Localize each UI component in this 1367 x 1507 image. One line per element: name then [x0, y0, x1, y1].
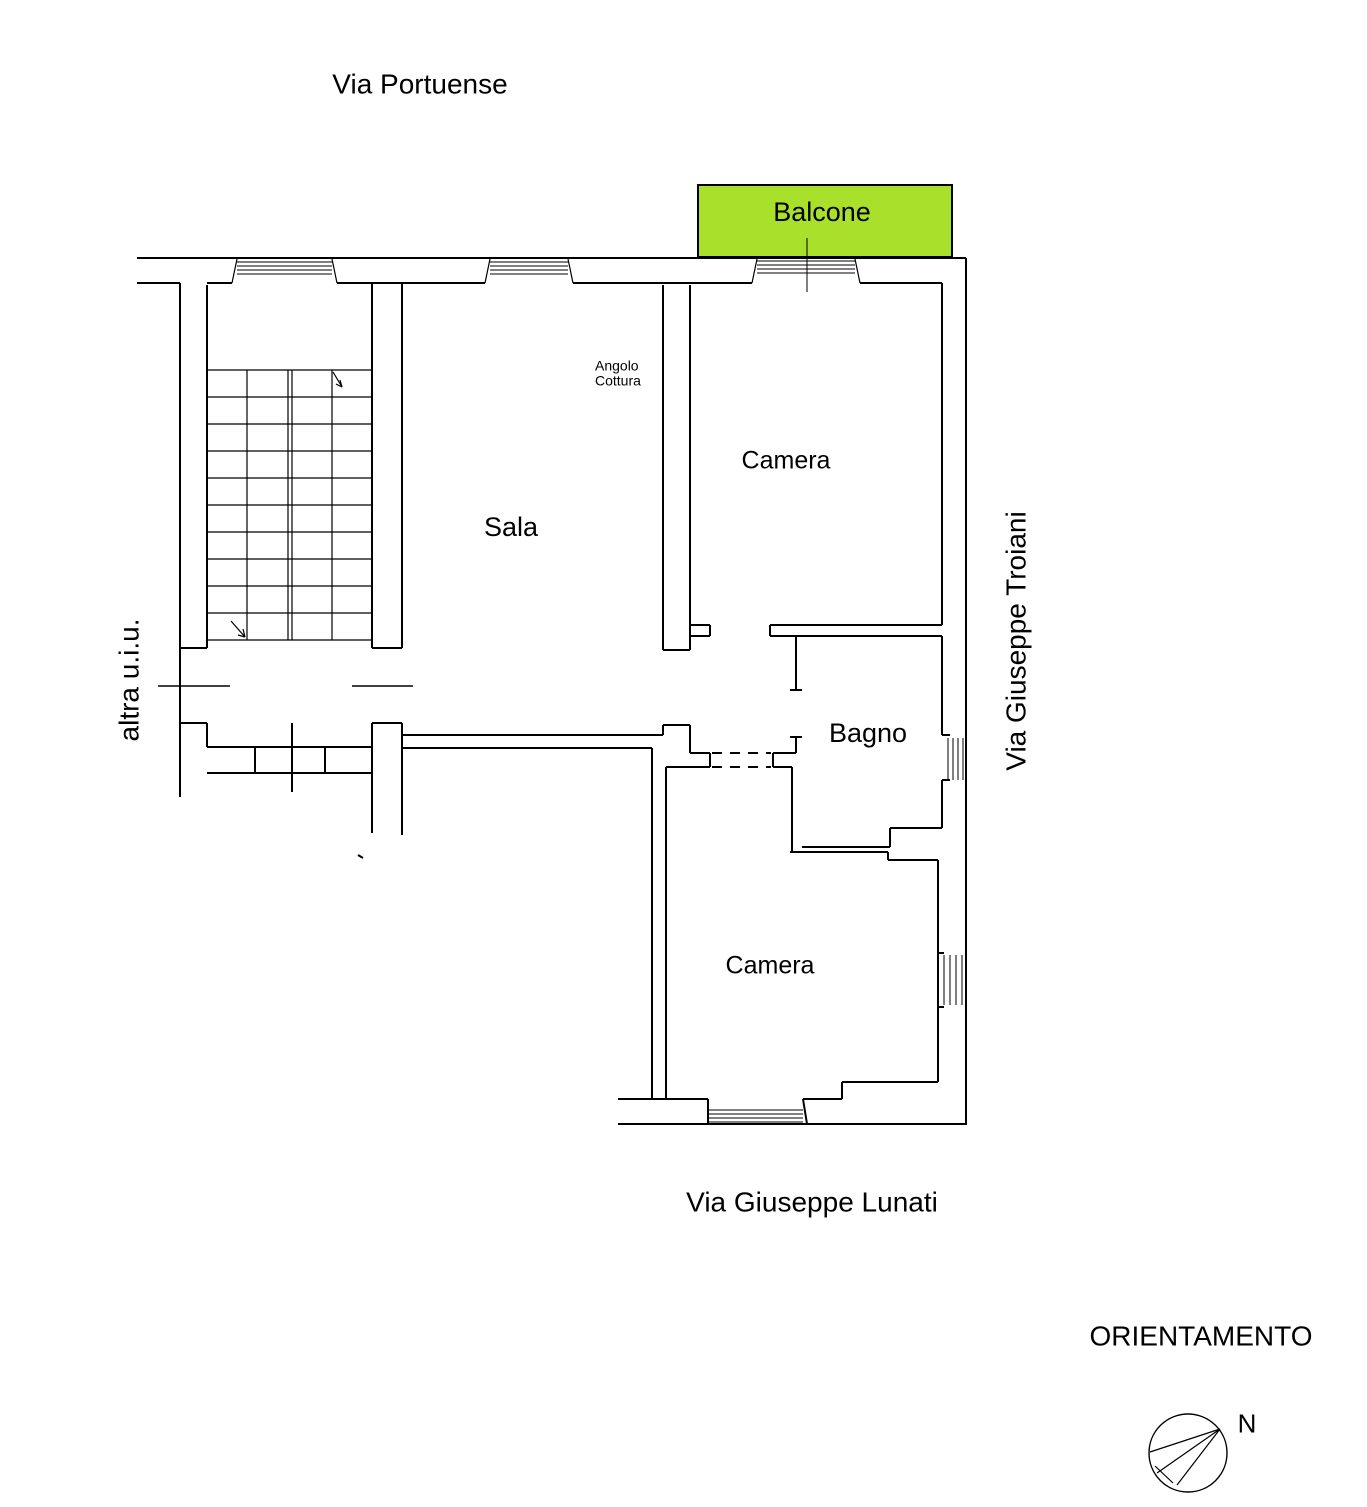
label-orientamento: ORIENTAMENTO [1090, 1322, 1313, 1353]
room-label-angolo-cottura: Angolo Cottura [595, 359, 641, 390]
dashed-opening [712, 753, 771, 767]
camera-bottom-walls [618, 725, 944, 1124]
room-label-balcone: Balcone [773, 198, 871, 228]
floorplan-canvas: Via Portuense Via Giuseppe Troiani Via G… [0, 0, 1367, 1507]
compass-icon [1149, 1414, 1227, 1492]
label-street-top: Via Portuense [332, 70, 507, 101]
floorplan-drawing [0, 0, 1367, 1507]
stairs-treads [207, 370, 372, 640]
label-street-right: Via Giuseppe Troiani [1002, 511, 1033, 770]
room-label-camera-bottom: Camera [726, 952, 815, 980]
room-label-bagno: Bagno [829, 719, 907, 749]
room-label-camera-top: Camera [742, 447, 831, 475]
sala-walls [402, 285, 690, 748]
north-arrow [1150, 1429, 1220, 1485]
compass-north-label: N [1238, 1410, 1257, 1439]
compass-circle [1149, 1414, 1227, 1492]
label-street-bottom: Via Giuseppe Lunati [686, 1188, 938, 1219]
room-label-sala: Sala [484, 513, 538, 543]
stairwell-walls [180, 283, 402, 858]
window-jambs [232, 259, 860, 283]
outer-walls [137, 258, 967, 1124]
label-other-unit: altra u.i.u. [115, 619, 146, 742]
